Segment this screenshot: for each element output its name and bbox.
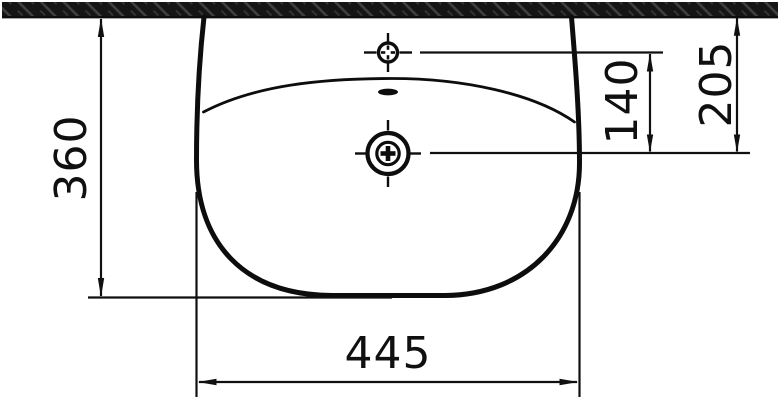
tap-hole-crosshair xyxy=(364,33,412,72)
dim-label-205: 205 xyxy=(691,41,742,128)
arrowhead-360-bottom xyxy=(98,278,104,297)
dimension-wall-to-drain-205: 205 xyxy=(691,17,742,152)
dim-label-360: 360 xyxy=(46,115,97,202)
arrowhead-445-right xyxy=(560,379,579,385)
arrowhead-205-bottom xyxy=(734,135,740,153)
drain-hole-crosshair xyxy=(355,120,421,187)
wall-hatch-fill xyxy=(2,2,778,17)
wall-hatch-band xyxy=(2,2,778,17)
washbasin-dimension-drawing: 360 140 205 445 xyxy=(0,0,780,400)
arrowhead-205-top xyxy=(734,17,740,35)
basin-rim-line xyxy=(204,79,575,123)
dim-label-140: 140 xyxy=(597,58,648,145)
dimension-height-360: 360 xyxy=(46,18,392,298)
dimension-tap-to-drain-140: 140 xyxy=(597,53,653,152)
dim-label-445: 445 xyxy=(345,328,432,379)
overflow-slot xyxy=(378,89,398,96)
technical-drawing-page: 360 140 205 445 xyxy=(0,0,780,400)
arrowhead-445-left xyxy=(198,379,217,385)
arrowhead-360-top xyxy=(98,18,104,37)
